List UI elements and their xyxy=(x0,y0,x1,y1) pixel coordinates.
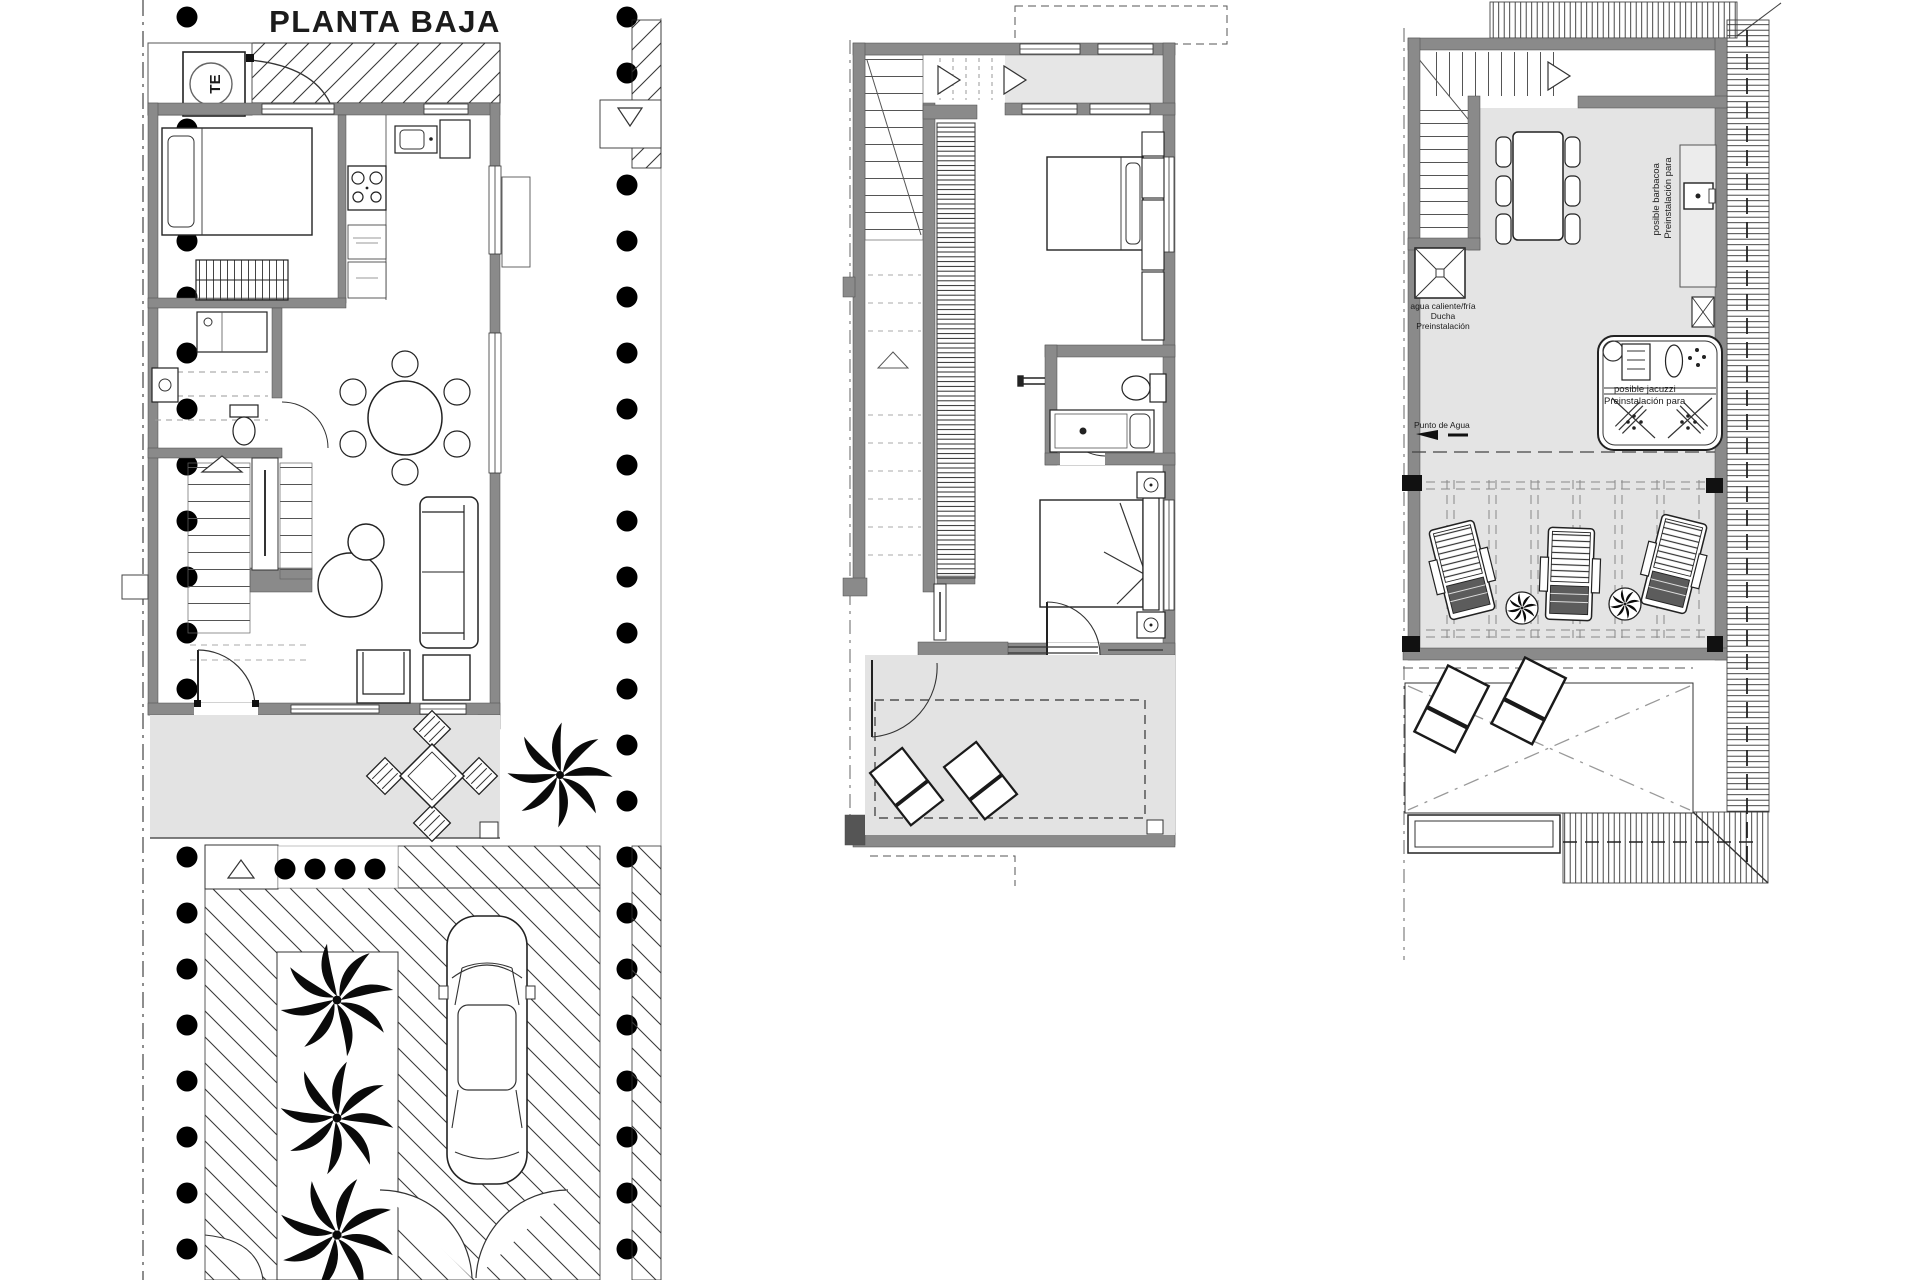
svg-text:Preinstalación para: Preinstalación para xyxy=(1604,396,1686,407)
staircase xyxy=(865,55,1026,640)
neighbor-window xyxy=(502,177,530,267)
electrical-panel-label: TE xyxy=(207,74,224,93)
toilet-icon xyxy=(230,405,258,445)
garden xyxy=(205,845,661,1280)
vanity-sink xyxy=(1050,410,1154,452)
stair-arrow xyxy=(938,66,960,94)
side-table xyxy=(423,655,470,700)
entry-porch-hatch xyxy=(252,43,500,103)
svg-text:agua caliente/fría: agua caliente/fría xyxy=(1410,301,1475,311)
pouf-large xyxy=(318,553,382,617)
roof-outline-dashed xyxy=(1015,6,1227,44)
svg-text:Punto de Agua: Punto de Agua xyxy=(1414,420,1470,430)
overhang-dashed xyxy=(870,856,1015,886)
svg-text:Ducha: Ducha xyxy=(1431,311,1456,321)
armchair xyxy=(357,650,410,703)
towel-rail xyxy=(1018,376,1045,386)
ground-floor-plan: PLANTA BAJA TE xyxy=(122,0,661,1280)
terrace-pillar xyxy=(480,822,498,838)
page-title: PLANTA BAJA xyxy=(269,4,501,39)
planter xyxy=(1408,815,1560,853)
sun-lounger xyxy=(1538,527,1601,621)
bedroom-bed xyxy=(162,128,312,235)
roof-terrace-plan: agua caliente/fría Ducha Preinstalación … xyxy=(1402,2,1781,960)
nightstand xyxy=(1137,612,1165,638)
floorplan-sheet: PLANTA BAJA TE xyxy=(0,0,1920,1280)
washing-machine xyxy=(197,312,267,352)
garden-gate-walk xyxy=(205,845,278,889)
svg-text:Preinstalación: Preinstalación xyxy=(1416,321,1470,331)
svg-text:posible jacuzzi: posible jacuzzi xyxy=(1614,384,1676,395)
kitchen xyxy=(348,115,470,300)
bathroom xyxy=(1018,374,1166,465)
bedroom1-bed xyxy=(1047,157,1143,250)
staircase xyxy=(188,456,312,660)
bedroom2-bed xyxy=(1040,472,1165,638)
roof-dining-set xyxy=(1496,132,1580,244)
meter-box xyxy=(122,575,148,599)
barbecue-note: posible barbacoa Preinstalación para xyxy=(1651,157,1674,239)
nightstand xyxy=(1137,472,1165,498)
toilet-icon xyxy=(1122,374,1166,402)
pouf-small xyxy=(348,524,384,560)
fridge xyxy=(440,120,470,158)
washbasin-icon xyxy=(152,368,178,402)
main-entrance-door xyxy=(194,650,259,707)
car xyxy=(439,916,535,1184)
terrace-pillar xyxy=(1147,820,1163,834)
floorplan-drawing: PLANTA BAJA TE xyxy=(0,0,1920,1280)
stair-flight-up xyxy=(937,123,975,578)
side-table-round xyxy=(1506,592,1538,624)
first-floor-plan xyxy=(843,6,1227,886)
svg-text:posible barbacoa Preinst: posible barbacoa Preinstalación para xyxy=(1651,157,1674,239)
jacuzzi-note: posible jacuzzi Preinstalación para xyxy=(1604,384,1686,407)
neighbor-entry-arrow xyxy=(600,100,661,148)
bathroom-door-arc xyxy=(282,402,328,448)
kitchen-sink xyxy=(395,126,437,153)
dining-table-round xyxy=(340,351,470,485)
shower-preinstall xyxy=(1415,248,1465,298)
bedroom-closet xyxy=(196,260,288,300)
palm-tree-icon xyxy=(499,714,622,837)
side-table-round xyxy=(1609,588,1641,620)
sofa xyxy=(420,497,478,648)
stove-icon xyxy=(348,166,386,210)
bedroom1-closet xyxy=(1142,132,1164,340)
stair-arrow-outline xyxy=(878,352,908,368)
gallery-floor xyxy=(1005,55,1163,103)
kitchen-cabinet-labels xyxy=(348,225,386,298)
stairs-above-dashed xyxy=(868,275,921,555)
headboard xyxy=(1143,498,1159,610)
gate-dots xyxy=(270,858,390,880)
